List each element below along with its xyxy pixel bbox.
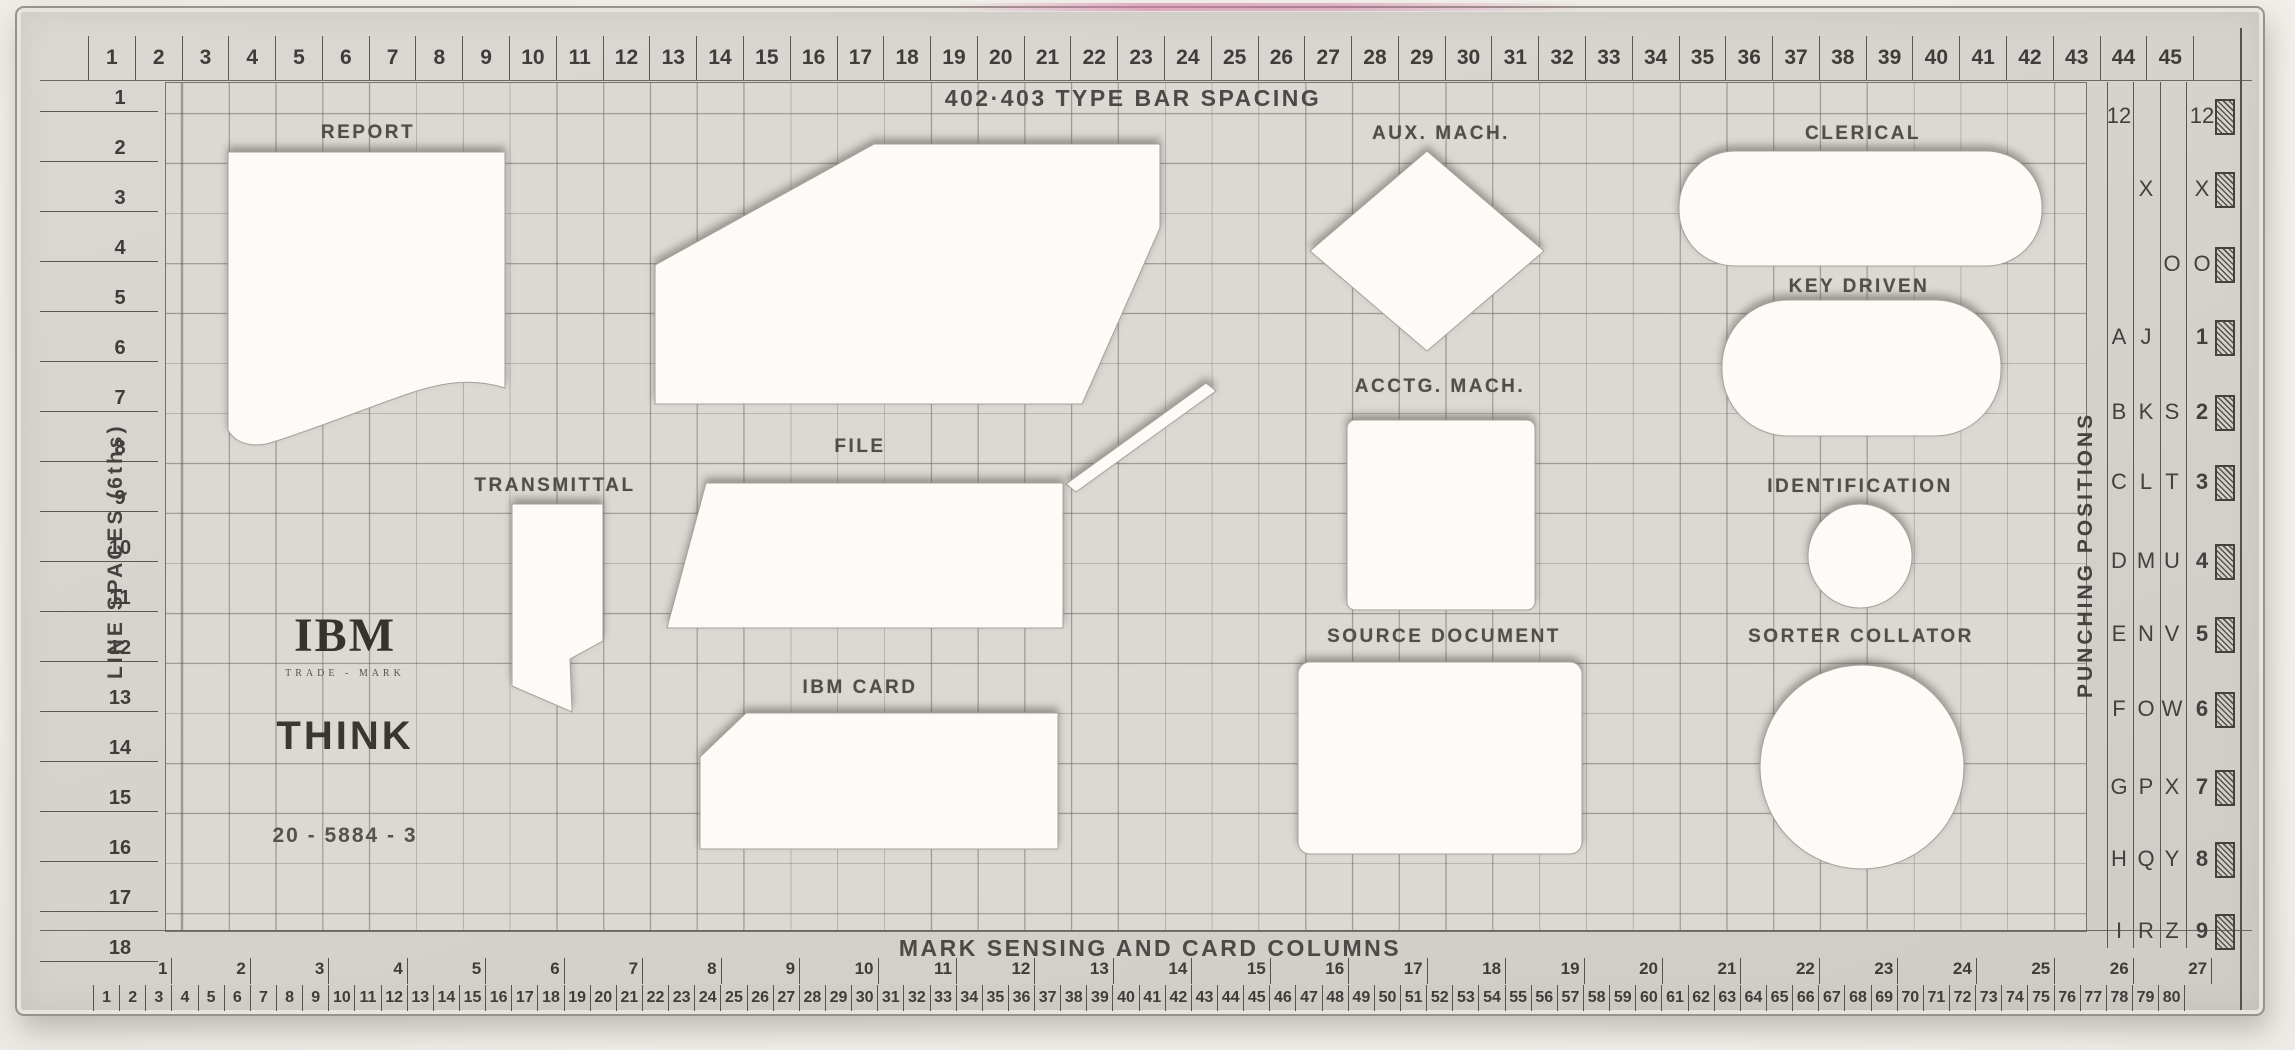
punch-row-cell: 1 xyxy=(2187,324,2217,350)
punch-row-cell: G xyxy=(2104,774,2134,800)
left-ruler-unit-number: 17 xyxy=(96,887,144,910)
punch-row-cell: S xyxy=(2157,399,2187,425)
card-column-number: 56 xyxy=(1532,985,1558,1011)
bottom-group-tick xyxy=(407,958,408,984)
bottom-group-number: 9 xyxy=(749,959,795,979)
punch-row-cell: A xyxy=(2104,324,2134,350)
top-ruler-unit: 19 xyxy=(931,36,978,80)
punch-row-cell: J xyxy=(2131,324,2161,350)
top-ruler-unit: 9 xyxy=(463,36,510,80)
bottom-group-number: 19 xyxy=(1534,959,1580,979)
card-column-number: 18 xyxy=(538,985,564,1011)
left-ruler-unit-number: 2 xyxy=(96,137,144,160)
punch-row-cell: W xyxy=(2157,696,2187,722)
card-column-number: 55 xyxy=(1506,985,1532,1011)
card-column-number: 45 xyxy=(1244,985,1270,1011)
bottom-group-number: 4 xyxy=(357,959,403,979)
card-column-number: 34 xyxy=(957,985,983,1011)
card-column-number: 30 xyxy=(852,985,878,1011)
punch-hatch-icon xyxy=(2215,617,2235,653)
card-column-number: 27 xyxy=(774,985,800,1011)
card-column-number: 26 xyxy=(748,985,774,1011)
large-document-cutout xyxy=(655,144,1160,404)
punch-hatch-icon xyxy=(2215,395,2235,431)
card-column-number: 40 xyxy=(1113,985,1139,1011)
punching-positions-label: PUNCHING POSITIONS xyxy=(2068,320,2104,790)
card-column-number: 68 xyxy=(1845,985,1871,1011)
card-column-number: 47 xyxy=(1296,985,1322,1011)
card-column-number: 7 xyxy=(251,985,277,1011)
punch-row-cell: 2 xyxy=(2187,399,2217,425)
punch-hatch-icon xyxy=(2215,172,2235,208)
bottom-group-number: 1 xyxy=(121,959,167,979)
card-column-number: 1 xyxy=(93,985,120,1011)
report-cutout xyxy=(228,152,505,445)
punch-row-cell: Y xyxy=(2157,846,2187,872)
key-driven-label: KEY DRIVEN xyxy=(1689,276,2029,298)
cutout-shapes-layer xyxy=(0,0,2295,1050)
bottom-group-tick xyxy=(799,958,800,984)
top-ruler-unit: 15 xyxy=(744,36,791,80)
top-ruler-unit: 43 xyxy=(2054,36,2101,80)
top-ruler-unit: 4 xyxy=(229,36,276,80)
top-ruler-unit: 5 xyxy=(276,36,323,80)
punch-row-cell: V xyxy=(2157,621,2187,647)
punch-hatch-icon xyxy=(2215,692,2235,728)
bottom-group-tick xyxy=(1505,958,1506,984)
top-ruler-unit: 35 xyxy=(1680,36,1727,80)
left-ruler-unit-number: 16 xyxy=(96,837,144,860)
bottom-group-number: 2 xyxy=(200,959,246,979)
card-column-number: 72 xyxy=(1950,985,1976,1011)
bottom-group-tick xyxy=(1584,958,1585,984)
bottom-ruler-columns-row: 1234567891011121314151617181920212223242… xyxy=(93,985,2185,1011)
card-column-number: 22 xyxy=(643,985,669,1011)
photo-of-ibm-flowchart-template: { "template": { "top_ruler": { "title": … xyxy=(0,0,2295,1050)
bottom-group-tick xyxy=(721,958,722,984)
card-column-number: 23 xyxy=(669,985,695,1011)
top-ruler-unit: 44 xyxy=(2101,36,2148,80)
card-column-number: 74 xyxy=(2002,985,2028,1011)
card-column-number: 59 xyxy=(1610,985,1636,1011)
punch-row-cell: X xyxy=(2187,176,2217,202)
card-column-number: 16 xyxy=(486,985,512,1011)
punch-row-cell: 5 xyxy=(2187,621,2217,647)
card-column-number: 43 xyxy=(1192,985,1218,1011)
bottom-group-tick xyxy=(328,958,329,984)
clerical-stadium-cutout xyxy=(1679,151,2042,266)
bottom-group-number: 14 xyxy=(1141,959,1187,979)
left-ruler-unit-number: 1 xyxy=(96,87,144,110)
card-column-number: 52 xyxy=(1427,985,1453,1011)
source-document-label: SOURCE DOCUMENT xyxy=(1274,626,1614,648)
top-ruler: 1234567891011121314151617181920212223242… xyxy=(88,36,2194,80)
bottom-group-tick xyxy=(642,958,643,984)
punch-row-cell: 4 xyxy=(2187,548,2217,574)
card-column-number: 2 xyxy=(120,985,146,1011)
left-ruler-unit: 3 xyxy=(38,162,160,212)
card-column-number: 35 xyxy=(983,985,1009,1011)
bottom-group-tick xyxy=(171,958,172,984)
left-ruler-unit: 6 xyxy=(38,312,160,362)
card-column-number: 9 xyxy=(303,985,329,1011)
top-ruler-unit: 22 xyxy=(1071,36,1118,80)
card-column-number: 71 xyxy=(1924,985,1950,1011)
left-ruler-unit: 17 xyxy=(38,862,160,912)
top-ruler-unit: 17 xyxy=(838,36,885,80)
punch-row-cell: H xyxy=(2104,846,2134,872)
top-ruler-unit: 30 xyxy=(1446,36,1493,80)
punch-hatch-icon xyxy=(2215,914,2235,950)
card-column-number: 64 xyxy=(1741,985,1767,1011)
bottom-group-tick xyxy=(250,958,251,984)
bottom-group-number: 7 xyxy=(592,959,638,979)
card-column-number: 48 xyxy=(1323,985,1349,1011)
aux-mach-label: AUX. MACH. xyxy=(1271,123,1611,145)
left-ruler-unit: 4 xyxy=(38,212,160,262)
bottom-group-tick xyxy=(2133,958,2134,984)
top-ruler-unit: 38 xyxy=(1820,36,1867,80)
card-column-number: 66 xyxy=(1793,985,1819,1011)
bottom-group-number: 20 xyxy=(1612,959,1658,979)
card-column-number: 3 xyxy=(146,985,172,1011)
punch-row-cell: 3 xyxy=(2187,469,2217,495)
punch-row-cell: X xyxy=(2157,774,2187,800)
card-column-number: 19 xyxy=(565,985,591,1011)
card-column-number: 31 xyxy=(878,985,904,1011)
card-column-number: 12 xyxy=(382,985,408,1011)
top-ruler-unit: 32 xyxy=(1539,36,1586,80)
card-column-number: 53 xyxy=(1453,985,1479,1011)
card-column-number: 39 xyxy=(1087,985,1113,1011)
ibm-card-label: IBM CARD xyxy=(690,677,1030,699)
left-ruler-unit-number: 5 xyxy=(96,287,144,310)
card-column-number: 77 xyxy=(2081,985,2107,1011)
bottom-group-number: 22 xyxy=(1769,959,1815,979)
bottom-group-number: 21 xyxy=(1690,959,1736,979)
bottom-group-number: 26 xyxy=(2083,959,2129,979)
bottom-group-number: 11 xyxy=(906,959,952,979)
bottom-group-tick xyxy=(2054,958,2055,984)
top-ruler-unit: 39 xyxy=(1867,36,1914,80)
think-slogan: THINK xyxy=(255,714,435,759)
punch-row-cell: 9 xyxy=(2187,918,2217,944)
acctg-mach-label: ACCTG. MACH. xyxy=(1270,376,1610,398)
card-column-number: 6 xyxy=(225,985,251,1011)
clerical-label: CLERICAL xyxy=(1693,123,2033,145)
card-column-number: 51 xyxy=(1401,985,1427,1011)
punch-row-cell: E xyxy=(2104,621,2134,647)
card-column-number: 24 xyxy=(695,985,721,1011)
punch-row-cell: T xyxy=(2157,469,2187,495)
card-column-number: 4 xyxy=(172,985,198,1011)
report-label: REPORT xyxy=(198,122,538,144)
card-column-number: 58 xyxy=(1584,985,1610,1011)
line-spaces-label: LINE SPACES (6ths) xyxy=(96,398,136,704)
bottom-group-number: 5 xyxy=(435,959,481,979)
top-ruler-title: 402·403 TYPE BAR SPACING xyxy=(833,85,1433,112)
top-ruler-unit: 34 xyxy=(1633,36,1680,80)
punch-row-cell: C xyxy=(2104,469,2134,495)
file-label: FILE xyxy=(690,436,1030,458)
punch-row-cell: O xyxy=(2157,251,2187,277)
sorter-collator-label: SORTER COLLATOR xyxy=(1691,626,2031,648)
top-ruler-unit: 18 xyxy=(884,36,931,80)
punch-hatch-icon xyxy=(2215,247,2235,283)
card-column-number: 38 xyxy=(1061,985,1087,1011)
card-column-number: 36 xyxy=(1009,985,1035,1011)
bottom-group-tick xyxy=(564,958,565,984)
card-column-number: 20 xyxy=(591,985,617,1011)
card-column-number: 57 xyxy=(1558,985,1584,1011)
top-ruler-unit: 12 xyxy=(604,36,651,80)
bottom-ruler-title: MARK SENSING AND CARD COLUMNS xyxy=(850,935,1450,962)
bottom-group-tick xyxy=(1976,958,1977,984)
left-ruler-unit-number: 4 xyxy=(96,237,144,260)
card-column-number: 17 xyxy=(512,985,538,1011)
card-column-number: 67 xyxy=(1819,985,1845,1011)
top-ruler-unit: 11 xyxy=(557,36,604,80)
top-ruler-unit: 40 xyxy=(1913,36,1960,80)
top-ruler-unit: 31 xyxy=(1492,36,1539,80)
left-ruler-unit-number: 3 xyxy=(96,187,144,210)
left-ruler-unit-number: 14 xyxy=(96,737,144,760)
top-ruler-unit: 36 xyxy=(1726,36,1773,80)
top-ruler-unit: 33 xyxy=(1586,36,1633,80)
bottom-group-tick xyxy=(1897,958,1898,984)
diagonal-line-slot-cutout xyxy=(1066,383,1216,492)
bottom-group-number: 24 xyxy=(1926,959,1972,979)
top-ruler-unit: 37 xyxy=(1773,36,1820,80)
punch-hatch-icon xyxy=(2215,544,2235,580)
left-ruler-unit-number: 6 xyxy=(96,337,144,360)
card-column-number: 28 xyxy=(800,985,826,1011)
top-ruler-unit: 27 xyxy=(1305,36,1352,80)
punch-row-cell: F xyxy=(2104,696,2134,722)
punch-row-cell: 12 xyxy=(2104,103,2134,129)
card-column-number: 75 xyxy=(2028,985,2054,1011)
top-ruler-unit: 7 xyxy=(370,36,417,80)
bottom-group-number: 27 xyxy=(2161,959,2207,979)
punch-hatch-icon xyxy=(2215,770,2235,806)
bottom-group-number: 8 xyxy=(671,959,717,979)
punch-hatch-icon xyxy=(2215,465,2235,501)
top-ruler-unit: 21 xyxy=(1025,36,1072,80)
punch-row-cell: Z xyxy=(2157,918,2187,944)
left-ruler-unit: 14 xyxy=(38,712,160,762)
card-column-number: 50 xyxy=(1375,985,1401,1011)
top-ruler-unit: 42 xyxy=(2007,36,2054,80)
top-ruler-unit: 14 xyxy=(697,36,744,80)
bottom-group-number: 25 xyxy=(2004,959,2050,979)
card-column-number: 62 xyxy=(1689,985,1715,1011)
bottom-group-number: 13 xyxy=(1063,959,1109,979)
bottom-group-number: 15 xyxy=(1220,959,1266,979)
top-ruler-unit: 16 xyxy=(791,36,838,80)
top-ruler-unit: 8 xyxy=(416,36,463,80)
bottom-group-number: 18 xyxy=(1455,959,1501,979)
sorter-collator-circle-cutout xyxy=(1760,665,1964,869)
punch-row-cell: 8 xyxy=(2187,846,2217,872)
top-ruler-unit: 23 xyxy=(1118,36,1165,80)
punch-hatch-icon xyxy=(2215,99,2235,135)
card-column-number: 11 xyxy=(355,985,381,1011)
card-column-number: 61 xyxy=(1662,985,1688,1011)
bottom-group-number: 10 xyxy=(828,959,874,979)
card-column-number: 46 xyxy=(1270,985,1296,1011)
left-ruler-unit: 1 xyxy=(38,62,160,112)
identification-circle-cutout xyxy=(1808,504,1912,608)
card-column-number: 60 xyxy=(1636,985,1662,1011)
left-ruler-unit-number: 18 xyxy=(96,937,144,960)
bottom-ruler: 1234567891011121314151617181920212223242… xyxy=(93,958,2213,1012)
card-column-number: 15 xyxy=(460,985,486,1011)
bottom-group-tick xyxy=(2211,958,2212,984)
card-column-number: 69 xyxy=(1872,985,1898,1011)
card-column-number: 10 xyxy=(329,985,355,1011)
left-ruler-unit: 16 xyxy=(38,812,160,862)
identification-label: IDENTIFICATION xyxy=(1690,476,2030,498)
card-column-number: 25 xyxy=(721,985,747,1011)
card-column-number: 79 xyxy=(2133,985,2159,1011)
aux-mach-diamond-cutout xyxy=(1310,151,1544,351)
top-ruler-unit: 6 xyxy=(323,36,370,80)
punch-row-cell: D xyxy=(2104,548,2134,574)
top-ruler-unit: 24 xyxy=(1165,36,1212,80)
left-ruler-unit: 2 xyxy=(38,112,160,162)
card-column-number: 37 xyxy=(1035,985,1061,1011)
card-column-number: 32 xyxy=(904,985,930,1011)
card-column-number: 54 xyxy=(1479,985,1505,1011)
left-ruler-unit: 15 xyxy=(38,762,160,812)
card-column-number: 65 xyxy=(1767,985,1793,1011)
top-ruler-unit: 28 xyxy=(1352,36,1399,80)
acctg-mach-square-cutout xyxy=(1347,420,1535,610)
punch-row-cell: I xyxy=(2104,918,2134,944)
card-column-number: 78 xyxy=(2107,985,2133,1011)
bottom-group-tick xyxy=(1819,958,1820,984)
card-column-number: 44 xyxy=(1218,985,1244,1011)
bottom-group-number: 23 xyxy=(1847,959,1893,979)
card-column-number: 63 xyxy=(1715,985,1741,1011)
card-column-number: 21 xyxy=(617,985,643,1011)
card-column-number: 13 xyxy=(408,985,434,1011)
key-driven-oval-cutout xyxy=(1722,300,2001,436)
bottom-group-number: 6 xyxy=(514,959,560,979)
card-column-number: 73 xyxy=(1976,985,2002,1011)
bottom-group-number: 17 xyxy=(1377,959,1423,979)
bottom-group-tick xyxy=(1662,958,1663,984)
top-ruler-unit: 25 xyxy=(1212,36,1259,80)
top-ruler-unit: 29 xyxy=(1399,36,1446,80)
card-column-number: 42 xyxy=(1166,985,1192,1011)
punch-row-cell: O xyxy=(2187,251,2217,277)
top-ruler-unit: 3 xyxy=(183,36,230,80)
punch-hatch-icon xyxy=(2215,842,2235,878)
card-column-number: 5 xyxy=(199,985,225,1011)
punch-row-cell: U xyxy=(2157,548,2187,574)
bottom-group-tick xyxy=(1740,958,1741,984)
punch-hatch-icon xyxy=(2215,320,2235,356)
card-column-number: 14 xyxy=(434,985,460,1011)
file-cutout xyxy=(667,483,1063,628)
left-ruler-unit-number: 15 xyxy=(96,787,144,810)
transmittal-label: TRANSMITTAL xyxy=(385,475,725,497)
part-number: 20 - 5884 - 3 xyxy=(255,824,435,848)
top-ruler-unit: 20 xyxy=(978,36,1025,80)
card-column-number: 29 xyxy=(826,985,852,1011)
source-document-cutout xyxy=(1298,662,1582,854)
left-ruler-unit: 5 xyxy=(38,262,160,312)
punch-row-cell: 7 xyxy=(2187,774,2217,800)
card-column-number: 8 xyxy=(277,985,303,1011)
top-ruler-unit: 45 xyxy=(2147,36,2194,80)
card-column-number: 80 xyxy=(2159,985,2185,1011)
bottom-group-number: 12 xyxy=(984,959,1030,979)
bottom-group-number: 16 xyxy=(1298,959,1344,979)
punch-row-cell: 12 xyxy=(2187,103,2217,129)
left-ruler-unit: 18 xyxy=(38,912,160,962)
card-column-number: 70 xyxy=(1898,985,1924,1011)
top-ruler-unit: 13 xyxy=(650,36,697,80)
punch-row-cell: X xyxy=(2131,176,2161,202)
trademark-text: TRADE - MARK xyxy=(265,668,425,679)
card-column-number: 49 xyxy=(1349,985,1375,1011)
transmittal-cutout xyxy=(512,504,603,712)
bottom-group-tick xyxy=(485,958,486,984)
card-column-number: 76 xyxy=(2055,985,2081,1011)
top-ruler-unit: 26 xyxy=(1259,36,1306,80)
punch-row-cell: B xyxy=(2104,399,2134,425)
card-column-number: 41 xyxy=(1140,985,1166,1011)
top-ruler-unit: 41 xyxy=(1960,36,2007,80)
punch-row-cell: 6 xyxy=(2187,696,2217,722)
ibm-card-cutout xyxy=(700,713,1058,849)
top-ruler-unit: 10 xyxy=(510,36,557,80)
card-column-number: 33 xyxy=(931,985,957,1011)
bottom-group-number: 3 xyxy=(278,959,324,979)
ibm-logo: IBM xyxy=(265,608,425,663)
